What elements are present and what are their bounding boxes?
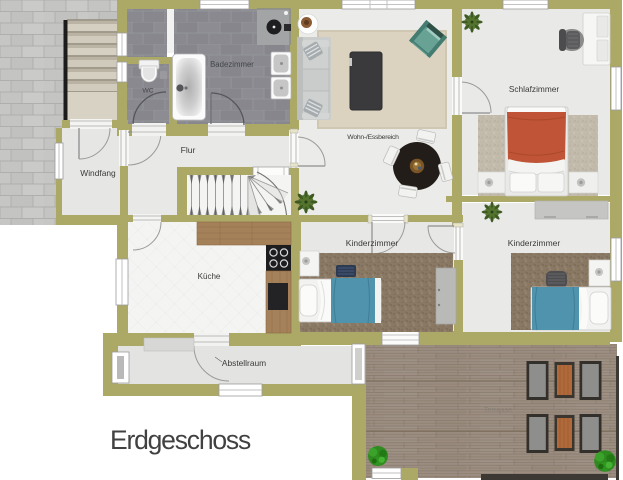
svg-text:Schlafzimmer: Schlafzimmer: [509, 84, 559, 94]
svg-text:Windfang: Windfang: [80, 168, 116, 178]
svg-text:Kinderzimmer: Kinderzimmer: [508, 238, 561, 248]
svg-text:Erdgeschoss: Erdgeschoss: [110, 425, 251, 455]
svg-text:Badezimmer: Badezimmer: [210, 60, 254, 69]
svg-text:Flur: Flur: [181, 145, 196, 155]
svg-text:Küche: Küche: [198, 272, 221, 281]
svg-text:Wohn-/Essbereich: Wohn-/Essbereich: [347, 134, 399, 141]
svg-text:WC: WC: [142, 88, 153, 95]
svg-text:Abstellraum: Abstellraum: [222, 358, 266, 368]
svg-text:Kinderzimmer: Kinderzimmer: [346, 238, 399, 248]
svg-text:Terrasse: Terrasse: [484, 405, 513, 414]
